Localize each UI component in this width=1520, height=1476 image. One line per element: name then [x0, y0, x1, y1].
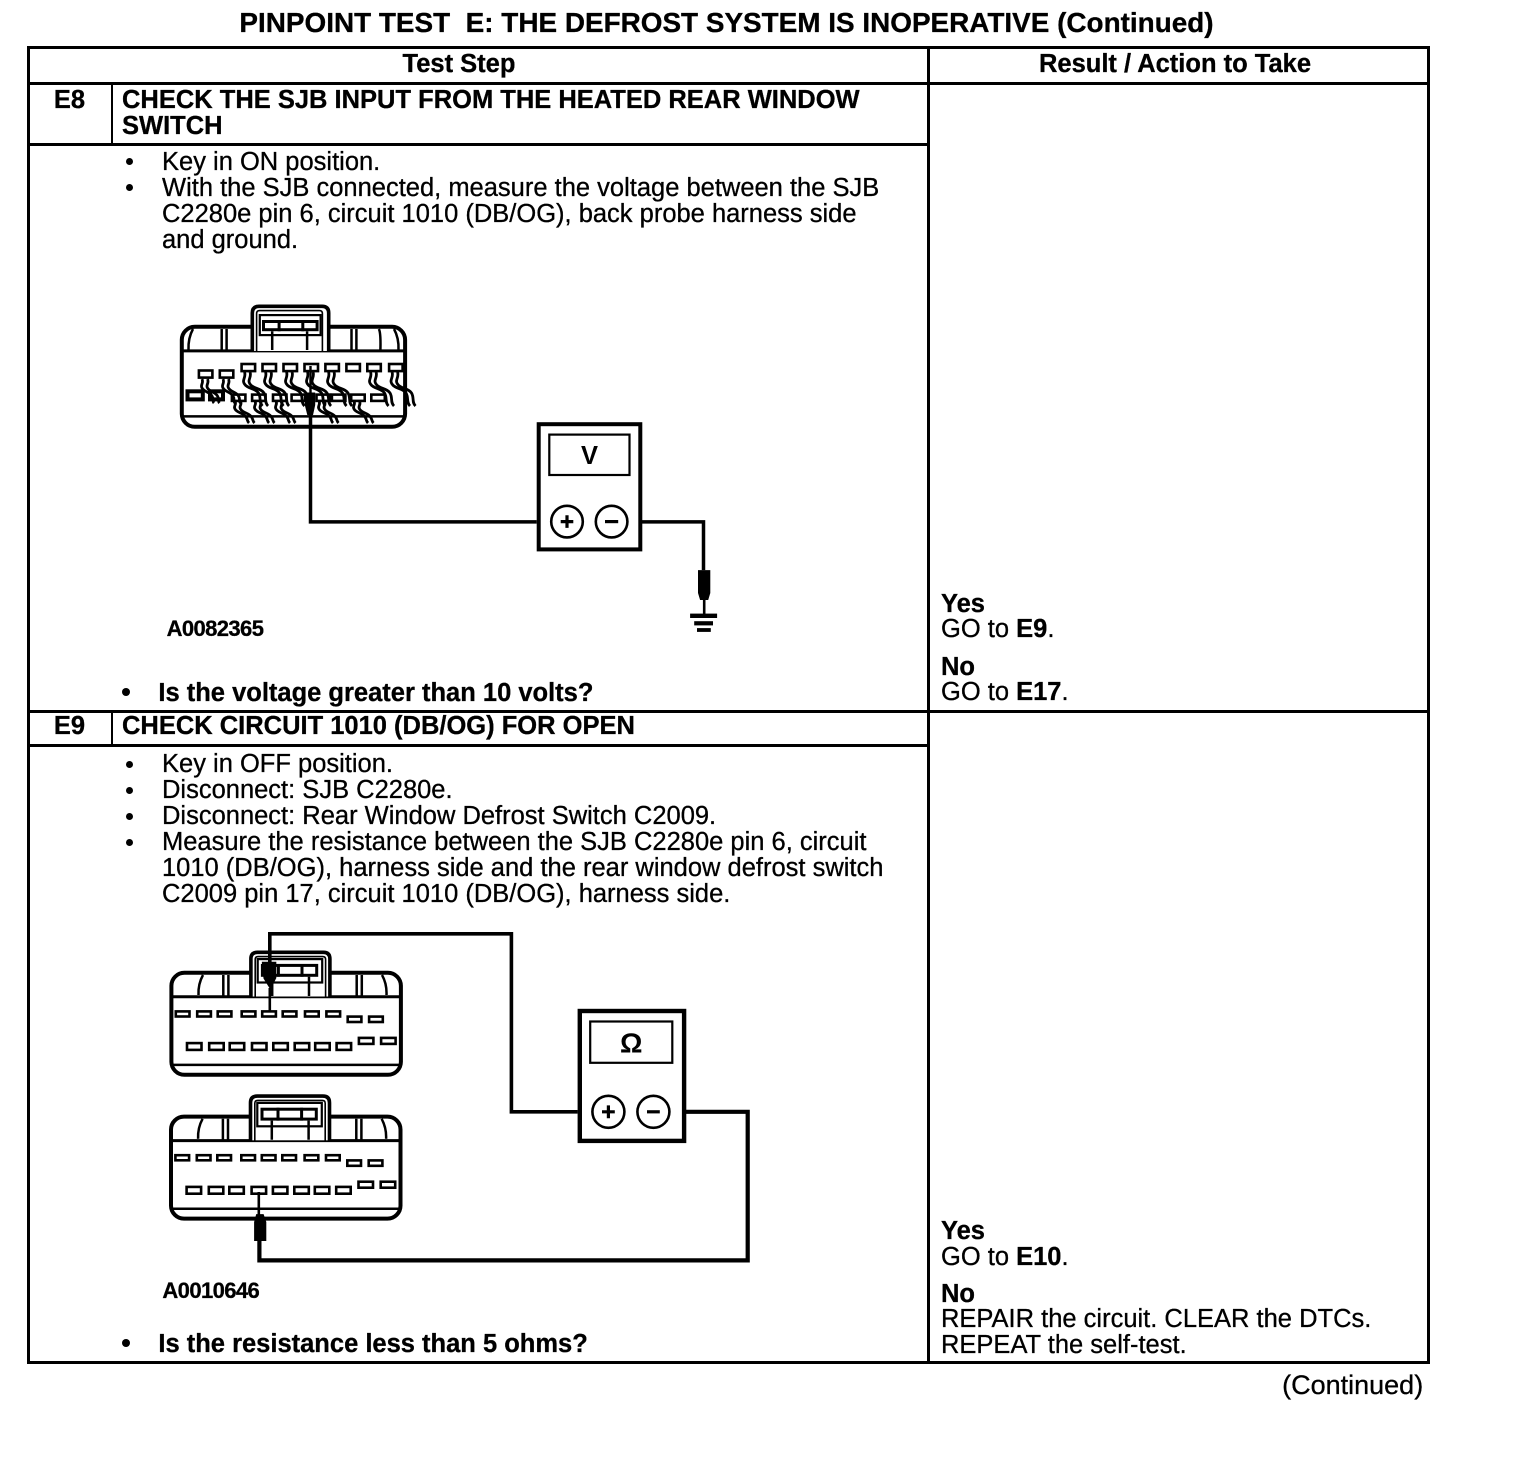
- svg-text:V: V: [581, 442, 598, 470]
- svg-text:Ω: Ω: [620, 1028, 642, 1059]
